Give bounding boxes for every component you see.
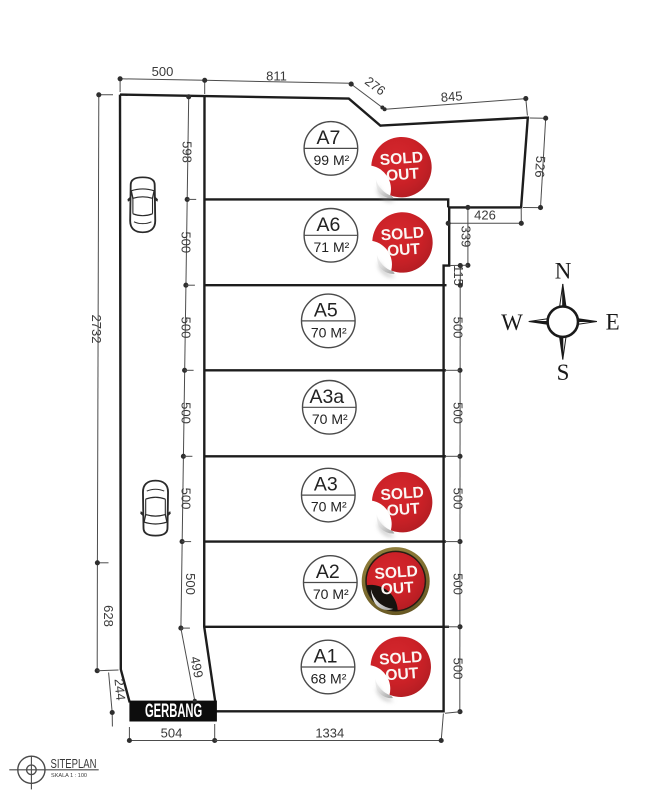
- svg-text:115: 115: [451, 265, 466, 286]
- svg-text:504: 504: [161, 726, 183, 741]
- svg-text:70 M²: 70 M²: [311, 499, 347, 515]
- svg-text:68 M²: 68 M²: [311, 671, 347, 687]
- svg-text:426: 426: [474, 208, 496, 223]
- svg-text:500: 500: [183, 573, 198, 595]
- svg-text:1334: 1334: [315, 726, 344, 741]
- svg-text:845: 845: [440, 88, 463, 105]
- svg-text:500: 500: [178, 488, 193, 510]
- svg-text:E: E: [606, 310, 620, 335]
- svg-text:811: 811: [266, 69, 287, 84]
- svg-text:500: 500: [451, 573, 466, 595]
- svg-text:A7: A7: [316, 127, 340, 149]
- svg-text:A2: A2: [316, 561, 340, 583]
- svg-text:70 M²: 70 M²: [312, 411, 348, 427]
- svg-text:244: 244: [112, 678, 129, 701]
- svg-text:500: 500: [451, 488, 466, 510]
- svg-text:598: 598: [179, 141, 194, 163]
- svg-text:SITEPLAN: SITEPLAN: [51, 756, 97, 771]
- svg-text:500: 500: [152, 64, 174, 79]
- svg-text:GERBANG: GERBANG: [145, 701, 202, 722]
- svg-text:500: 500: [178, 231, 193, 253]
- svg-text:SKALA 1 : 100: SKALA 1 : 100: [51, 773, 87, 779]
- svg-text:71 M²: 71 M²: [314, 239, 350, 255]
- svg-text:A5: A5: [314, 299, 338, 321]
- svg-text:628: 628: [101, 605, 116, 627]
- svg-text:500: 500: [451, 658, 466, 680]
- svg-text:500: 500: [178, 317, 193, 339]
- svg-text:A6: A6: [316, 214, 340, 236]
- svg-text:A1: A1: [314, 646, 338, 668]
- svg-text:2732: 2732: [89, 315, 104, 344]
- svg-text:500: 500: [451, 402, 466, 424]
- svg-text:A3: A3: [314, 474, 338, 496]
- svg-text:A3a: A3a: [309, 386, 344, 408]
- svg-text:70 M²: 70 M²: [311, 324, 347, 340]
- svg-text:70 M²: 70 M²: [313, 586, 349, 602]
- svg-text:W: W: [501, 310, 523, 335]
- svg-text:N: N: [555, 259, 572, 284]
- svg-text:339: 339: [459, 226, 474, 248]
- svg-text:500: 500: [178, 402, 193, 424]
- svg-text:S: S: [557, 360, 570, 385]
- svg-text:500: 500: [451, 317, 466, 339]
- svg-text:526: 526: [532, 155, 548, 178]
- svg-text:99 M²: 99 M²: [314, 152, 350, 168]
